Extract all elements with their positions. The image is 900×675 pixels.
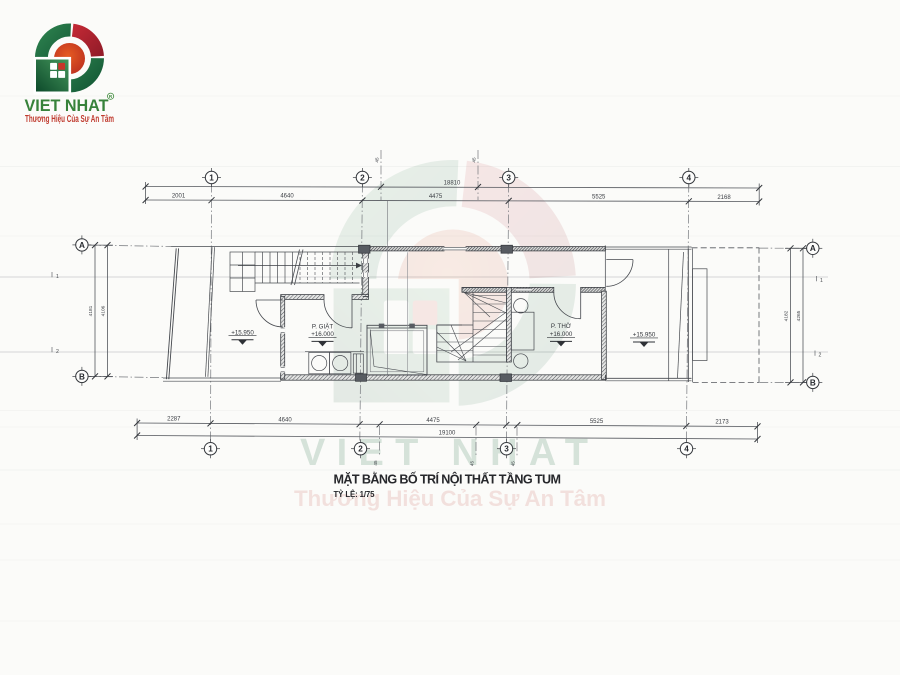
svg-text:2001: 2001 — [172, 193, 186, 199]
svg-text:P. GIẶT: P. GIẶT — [312, 323, 333, 330]
svg-text:TỶ LỆ: 1/75: TỶ LỆ: 1/75 — [334, 490, 376, 499]
svg-text:+16.000: +16.000 — [550, 331, 573, 338]
svg-text:2: 2 — [360, 173, 365, 182]
svg-text:A: A — [79, 241, 85, 250]
svg-text:+16.000: +16.000 — [311, 331, 334, 338]
svg-text:VIET NHAT: VIET NHAT — [300, 432, 588, 474]
svg-text:45: 45 — [375, 157, 380, 163]
svg-text:4640: 4640 — [278, 417, 292, 423]
svg-text:45: 45 — [472, 157, 477, 163]
svg-text:4181: 4181 — [88, 305, 94, 316]
svg-text:2: 2 — [358, 445, 363, 454]
svg-text:2173: 2173 — [715, 420, 729, 426]
svg-text:1: 1 — [820, 278, 823, 284]
svg-text:45: 45 — [373, 460, 378, 466]
svg-text:+15.950: +15.950 — [231, 329, 254, 336]
svg-text:3: 3 — [506, 173, 511, 182]
svg-text:VIET NHAT: VIET NHAT — [25, 96, 110, 115]
svg-text:4: 4 — [687, 173, 692, 182]
svg-text:A: A — [810, 244, 816, 253]
svg-text:Thương Hiệu Của Sự An Tâm: Thương Hiệu Của Sự An Tâm — [25, 114, 114, 125]
svg-text:5525: 5525 — [592, 194, 606, 200]
svg-text:1: 1 — [209, 173, 214, 182]
svg-text:18810: 18810 — [444, 180, 461, 186]
svg-text:3: 3 — [504, 445, 509, 454]
svg-text:B: B — [810, 378, 816, 387]
svg-text:2168: 2168 — [717, 195, 731, 201]
svg-text:4265: 4265 — [796, 310, 802, 321]
svg-text:MẶT BẰNG BỐ TRÍ NỘI THẤT TẦNG: MẶT BẰNG BỐ TRÍ NỘI THẤT TẦNG TUM — [334, 472, 562, 487]
svg-text:4106: 4106 — [101, 305, 107, 316]
svg-text:4640: 4640 — [280, 194, 294, 200]
svg-text:P. THỜ: P. THỜ — [551, 323, 572, 330]
svg-text:+15.950: +15.950 — [633, 332, 656, 339]
svg-text:5525: 5525 — [590, 419, 604, 425]
svg-text:1: 1 — [208, 445, 213, 454]
svg-text:1: 1 — [56, 274, 59, 280]
svg-text:4: 4 — [684, 445, 689, 454]
svg-text:45: 45 — [470, 461, 475, 467]
svg-text:4475: 4475 — [429, 194, 443, 200]
svg-text:2287: 2287 — [167, 417, 181, 423]
svg-text:4475: 4475 — [426, 418, 440, 424]
svg-text:45: 45 — [511, 461, 516, 467]
svg-text:2: 2 — [56, 349, 59, 355]
svg-text:2: 2 — [819, 353, 822, 359]
svg-text:B: B — [79, 372, 85, 381]
svg-text:4182: 4182 — [784, 310, 790, 321]
svg-text:19100: 19100 — [439, 430, 456, 436]
